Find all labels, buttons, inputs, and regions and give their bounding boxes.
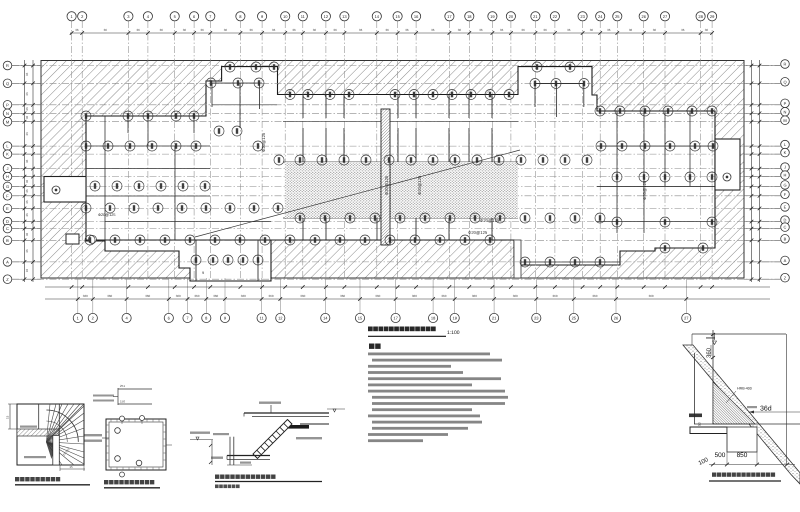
svg-text:36: 36 — [292, 28, 296, 32]
svg-text:36: 36 — [25, 92, 29, 96]
svg-text:36: 36 — [137, 28, 141, 32]
svg-text:36: 36 — [333, 28, 337, 32]
svg-text:251: 251 — [120, 384, 125, 388]
svg-text:M: M — [6, 119, 9, 124]
svg-text:D: D — [6, 219, 9, 224]
svg-text:12: 12 — [278, 316, 283, 321]
svg-text:29: 29 — [710, 14, 715, 19]
svg-text:36: 36 — [25, 213, 29, 217]
svg-text:360: 360 — [649, 294, 654, 298]
svg-text:360: 360 — [194, 294, 199, 298]
svg-text:360: 360 — [340, 294, 345, 298]
svg-text:36: 36 — [224, 28, 228, 32]
svg-text:36: 36 — [201, 28, 205, 32]
svg-text:360: 360 — [83, 294, 88, 298]
svg-text:A: A — [784, 258, 787, 263]
svg-text:HRB-400: HRB-400 — [737, 387, 752, 391]
svg-text:36: 36 — [160, 28, 164, 32]
svg-text:Φ20@125: Φ20@125 — [642, 180, 647, 200]
svg-text:36: 36 — [458, 28, 462, 32]
svg-text:360: 360 — [375, 294, 380, 298]
svg-text:14: 14 — [323, 316, 328, 321]
svg-text:36: 36 — [25, 116, 29, 120]
svg-text:36: 36 — [25, 72, 29, 76]
svg-text:36d: 36d — [760, 405, 772, 413]
svg-text:J: J — [7, 166, 9, 171]
svg-text:36: 36 — [25, 249, 29, 253]
svg-text:26: 26 — [614, 316, 619, 321]
svg-text:360: 360 — [213, 294, 218, 298]
svg-text:21: 21 — [492, 316, 497, 321]
svg-text:360: 360 — [107, 294, 112, 298]
svg-text:J: J — [784, 165, 786, 170]
svg-text:H: H — [784, 173, 787, 178]
svg-text:36: 36 — [25, 159, 29, 163]
svg-text:500: 500 — [715, 452, 726, 459]
svg-text:360: 360 — [441, 294, 446, 298]
svg-text:36: 36 — [386, 28, 390, 32]
svg-text:15: 15 — [69, 465, 73, 469]
svg-text:Φ20@125: Φ20@125 — [384, 175, 389, 195]
svg-text:36: 36 — [521, 28, 525, 32]
svg-text:G: G — [783, 183, 786, 188]
svg-text:36: 36 — [543, 28, 547, 32]
svg-text:E: E — [6, 206, 9, 211]
svg-text:36: 36 — [183, 28, 187, 32]
svg-text:36: 36 — [25, 269, 29, 273]
svg-text:150: 150 — [120, 400, 125, 404]
svg-text:12: 12 — [324, 14, 329, 19]
svg-text:36: 36 — [272, 28, 276, 32]
svg-text:23: 23 — [580, 14, 585, 19]
svg-text:Q: Q — [783, 79, 786, 84]
svg-text:9: 9 — [202, 271, 204, 275]
svg-text:36: 36 — [25, 232, 29, 236]
svg-text:Φ20@125: Φ20@125 — [261, 132, 266, 152]
svg-text:G: G — [6, 184, 9, 189]
svg-text:Φ20@125: Φ20@125 — [480, 218, 500, 223]
svg-text:36: 36 — [75, 28, 79, 32]
svg-text:50: 50 — [698, 422, 702, 426]
svg-text:E: E — [784, 205, 787, 210]
svg-text:10: 10 — [283, 14, 288, 19]
svg-text:18: 18 — [467, 14, 472, 19]
svg-text:26: 26 — [641, 14, 646, 19]
svg-text:360: 360 — [706, 347, 713, 358]
svg-text:N: N — [6, 111, 9, 116]
svg-text:20: 20 — [509, 14, 514, 19]
svg-text:36: 36 — [359, 28, 363, 32]
svg-text:36: 36 — [431, 28, 435, 32]
svg-text:R: R — [6, 63, 9, 68]
svg-text:B: B — [784, 236, 787, 241]
svg-text:K: K — [6, 152, 9, 157]
svg-text:A: A — [6, 260, 9, 265]
svg-text:23: 23 — [534, 316, 539, 321]
svg-text:Φ20@125: Φ20@125 — [417, 175, 422, 195]
svg-text:360: 360 — [592, 294, 597, 298]
svg-text:360: 360 — [513, 294, 518, 298]
svg-text:36: 36 — [25, 180, 29, 184]
svg-text:21: 21 — [533, 14, 538, 19]
svg-text:C: C — [784, 225, 787, 230]
svg-text:360: 360 — [472, 294, 477, 298]
svg-text:36: 36 — [479, 28, 483, 32]
svg-text:36: 36 — [405, 28, 409, 32]
svg-text:360: 360 — [300, 294, 305, 298]
svg-text:360: 360 — [268, 294, 273, 298]
svg-text:36: 36 — [500, 28, 504, 32]
svg-text:36: 36 — [629, 28, 633, 32]
svg-text:18: 18 — [431, 316, 436, 321]
svg-text:36: 36 — [25, 107, 29, 111]
svg-text:H: H — [6, 174, 9, 179]
svg-text:27: 27 — [663, 14, 668, 19]
svg-text:36: 36 — [25, 132, 29, 136]
svg-text:K: K — [784, 150, 787, 155]
svg-text:R: R — [784, 62, 787, 67]
svg-text:C: C — [6, 226, 9, 231]
svg-text:D: D — [784, 218, 787, 223]
svg-text:25: 25 — [572, 316, 577, 321]
svg-text:17: 17 — [393, 316, 398, 321]
svg-text:36: 36 — [25, 200, 29, 204]
svg-text:17: 17 — [447, 14, 452, 19]
svg-text:36: 36 — [250, 28, 254, 32]
svg-text:22: 22 — [553, 14, 558, 19]
svg-text:16: 16 — [414, 14, 419, 19]
svg-text:27: 27 — [684, 316, 689, 321]
svg-text:360: 360 — [145, 294, 150, 298]
svg-text:Φ20@125: Φ20@125 — [98, 213, 115, 217]
svg-text:36: 36 — [681, 28, 685, 32]
svg-text:P: P — [784, 101, 787, 106]
svg-text:36: 36 — [653, 28, 657, 32]
svg-text:28: 28 — [698, 14, 703, 19]
svg-text:15: 15 — [358, 316, 363, 321]
svg-text:13: 13 — [342, 14, 347, 19]
svg-text:Φ20@125: Φ20@125 — [468, 230, 488, 235]
svg-text:N: N — [784, 109, 787, 114]
svg-text:19: 19 — [490, 14, 495, 19]
svg-text:P: P — [6, 102, 9, 107]
svg-text:36: 36 — [607, 28, 611, 32]
svg-text:36: 36 — [313, 28, 317, 32]
svg-text:36: 36 — [705, 28, 709, 32]
svg-text:19: 19 — [452, 316, 457, 321]
svg-text:15: 15 — [395, 14, 400, 19]
svg-text:14: 14 — [375, 14, 380, 19]
svg-text:36: 36 — [590, 28, 594, 32]
svg-text:360: 360 — [241, 294, 246, 298]
svg-text:24: 24 — [598, 14, 603, 19]
svg-text:360: 360 — [412, 294, 417, 298]
svg-text:36: 36 — [567, 28, 571, 32]
svg-text:B: B — [6, 238, 9, 243]
svg-text:Q: Q — [6, 81, 9, 86]
svg-text:1:100: 1:100 — [447, 330, 460, 336]
svg-text:36: 36 — [104, 28, 108, 32]
svg-text:36: 36 — [25, 189, 29, 193]
svg-text:15: 15 — [6, 415, 10, 419]
svg-text:360: 360 — [552, 294, 557, 298]
svg-text:25: 25 — [615, 14, 620, 19]
svg-text:M: M — [783, 118, 786, 123]
svg-text:360: 360 — [176, 294, 181, 298]
svg-text:850: 850 — [737, 452, 748, 459]
